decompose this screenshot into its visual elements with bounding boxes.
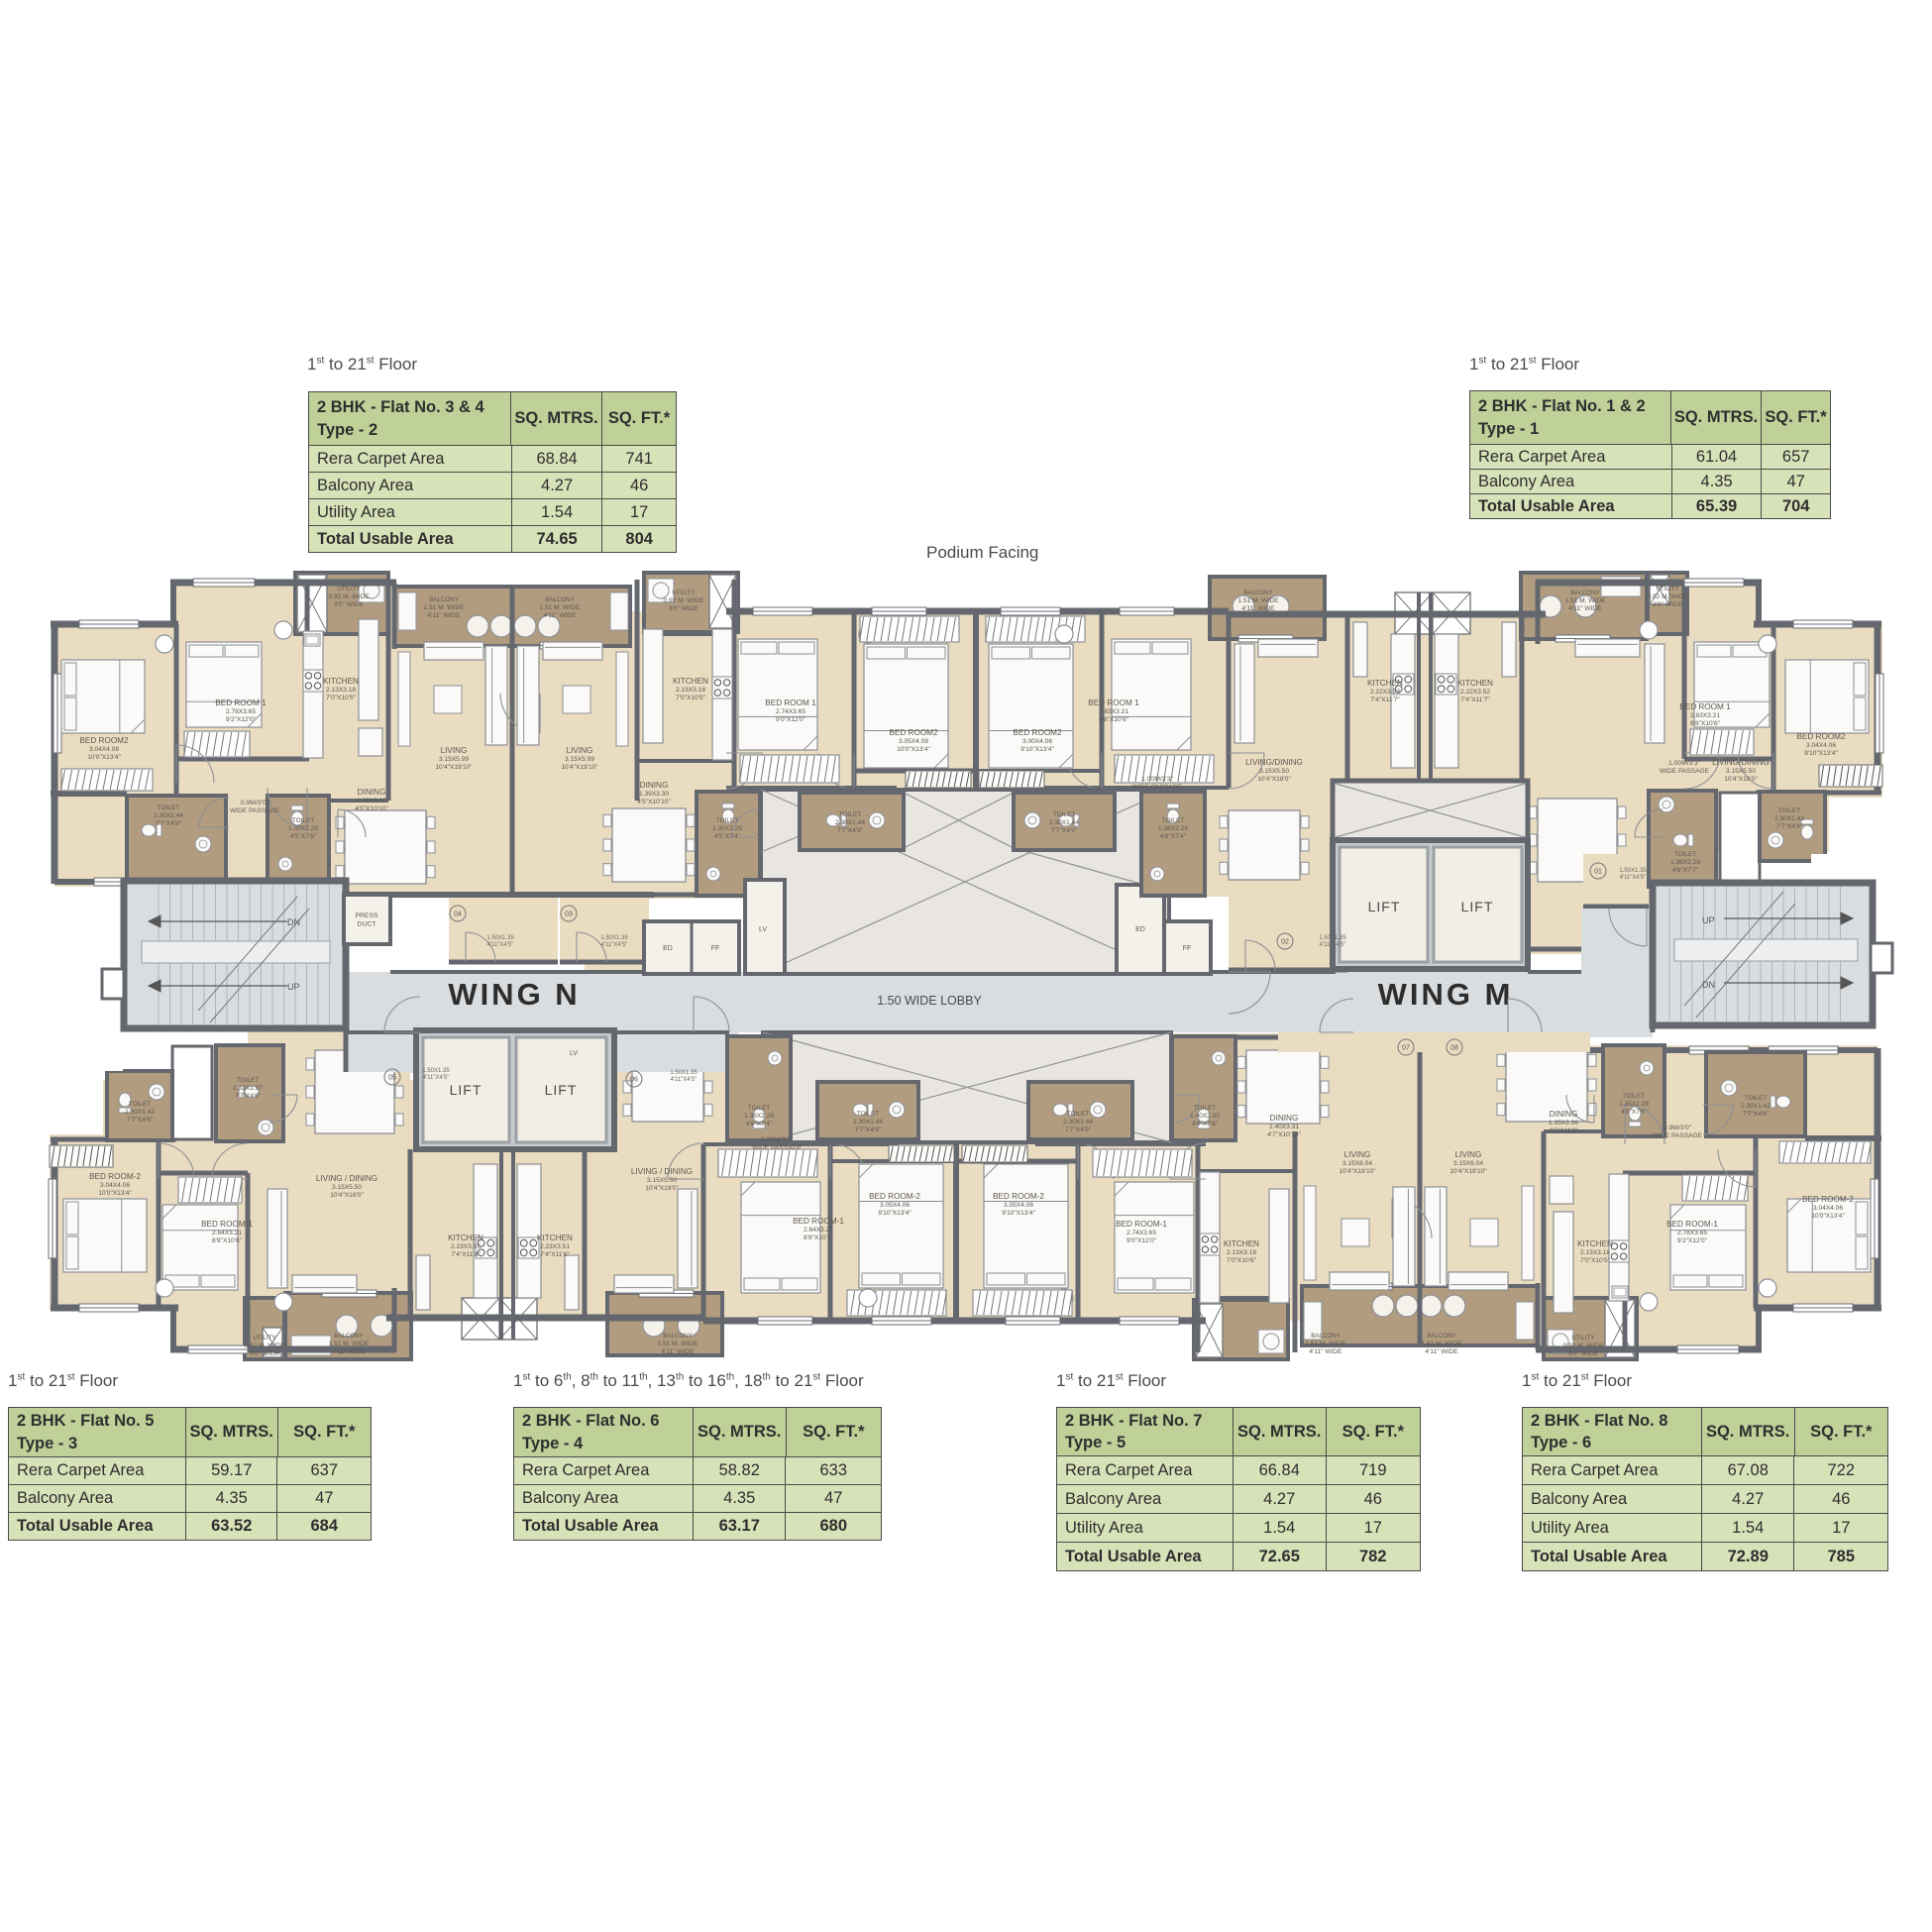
svg-text:WING N: WING N <box>448 977 580 1012</box>
svg-text:LIFT: LIFT <box>450 1082 483 1098</box>
svg-text:KITCHEN2.23X3.557'4"X11'8": KITCHEN2.23X3.557'4"X11'8" <box>448 1234 483 1258</box>
svg-text:07: 07 <box>1402 1045 1410 1052</box>
svg-text:4'11"X4'5": 4'11"X4'5" <box>423 1075 450 1081</box>
svg-text:1.50X1.35: 1.50X1.35 <box>600 935 628 941</box>
svg-text:ED: ED <box>1135 926 1145 933</box>
svg-text:TOILET2.30X1.447'7"X4'9": TOILET2.30X1.447'7"X4'9" <box>853 1111 883 1133</box>
svg-text:LIFT: LIFT <box>545 1082 578 1098</box>
svg-text:1.50X1.35: 1.50X1.35 <box>1319 935 1346 941</box>
svg-text:TOILET2.30X1.447'7"X4'9": TOILET2.30X1.447'7"X4'9" <box>1049 811 1079 834</box>
svg-text:TOILET1.38X2.284'6"X7'7": TOILET1.38X2.284'6"X7'7" <box>1670 851 1700 874</box>
svg-text:LV: LV <box>759 926 767 933</box>
svg-text:UP: UP <box>1702 915 1715 925</box>
svg-text:4'11"X4'5": 4'11"X4'5" <box>1620 875 1647 881</box>
svg-text:03: 03 <box>565 912 573 918</box>
svg-text:ED: ED <box>663 945 673 952</box>
svg-text:KITCHEN2.22X3.527'4"X11'7": KITCHEN2.22X3.527'4"X11'7" <box>1367 679 1403 703</box>
svg-text:TOILET1.35X2.254'5"X7'4": TOILET1.35X2.254'5"X7'4" <box>712 817 742 840</box>
svg-text:4'11"X4'5": 4'11"X4'5" <box>1320 942 1346 948</box>
svg-text:TOILET2.32X1.377'7"X4'6": TOILET2.32X1.377'7"X4'6" <box>233 1077 263 1100</box>
svg-text:DINING1.35X3.364'5"X11'0": DINING1.35X3.364'5"X11'0" <box>1549 1110 1578 1134</box>
svg-text:TOILET1.35X2.284'5"X7'6": TOILET1.35X2.284'5"X7'6" <box>1619 1093 1649 1116</box>
svg-text:4'11"X4'5": 4'11"X4'5" <box>671 1077 698 1083</box>
svg-text:DINING1.39X3.304'5"X10'10": DINING1.39X3.304'5"X10'10" <box>355 788 388 812</box>
svg-text:1.50X1.35: 1.50X1.35 <box>422 1068 450 1074</box>
svg-text:LV: LV <box>570 1050 578 1057</box>
svg-text:KITCHEN2.13X3.187'0"X10'5": KITCHEN2.13X3.187'0"X10'5" <box>673 677 708 701</box>
svg-text:DN: DN <box>1702 980 1715 990</box>
svg-text:KITCHEN2.22X3.527'4"X11'7": KITCHEN2.22X3.527'4"X11'7" <box>1457 679 1493 703</box>
svg-text:KITCHEN2.13X3.187'0"X10'5": KITCHEN2.13X3.187'0"X10'5" <box>323 677 359 701</box>
svg-text:PRESSDUCT: PRESSDUCT <box>355 912 378 927</box>
svg-text:08: 08 <box>1450 1045 1458 1052</box>
svg-text:06: 06 <box>630 1077 638 1084</box>
svg-text:4'11"X4'5": 4'11"X4'5" <box>601 942 628 948</box>
svg-text:1.50X1.35: 1.50X1.35 <box>486 935 514 941</box>
svg-text:05: 05 <box>388 1075 396 1082</box>
svg-text:KITCHEN2.13X3.187'0"X10'6": KITCHEN2.13X3.187'0"X10'6" <box>1224 1239 1259 1264</box>
svg-text:4'11"X4'5": 4'11"X4'5" <box>487 942 514 948</box>
svg-text:WING M: WING M <box>1378 977 1514 1012</box>
svg-text:TOILET2.30X1.427'7"X4'8": TOILET2.30X1.427'7"X4'8" <box>1741 1095 1771 1118</box>
svg-text:TOILET1.38X2.254'6"X7'4": TOILET1.38X2.254'6"X7'4" <box>1158 817 1188 840</box>
svg-text:DINING1.39X3.304'5"X10'10": DINING1.39X3.304'5"X10'10" <box>637 781 671 805</box>
svg-text:FF: FF <box>711 945 720 952</box>
svg-text:TOILET2.30X1.447'7"X4'9": TOILET2.30X1.447'7"X4'9" <box>835 811 865 834</box>
svg-text:1.50 WIDE LOBBY: 1.50 WIDE LOBBY <box>877 994 982 1008</box>
svg-text:DINING1.40X3.314'7"X10'10": DINING1.40X3.314'7"X10'10" <box>1267 1114 1301 1138</box>
svg-text:LIFT: LIFT <box>1368 899 1401 914</box>
svg-text:LIFT: LIFT <box>1461 899 1494 914</box>
svg-text:01: 01 <box>1594 869 1602 876</box>
svg-text:TOILET2.30X1.447'7"X4'9": TOILET2.30X1.447'7"X4'9" <box>154 805 183 827</box>
svg-text:FF: FF <box>1183 945 1192 952</box>
svg-text:KITCHEN2.13X3.187'0"X10'5": KITCHEN2.13X3.187'0"X10'5" <box>1577 1239 1613 1264</box>
svg-text:TOILET1.40X2.304'6"X7'6": TOILET1.40X2.304'6"X7'6" <box>1190 1105 1220 1127</box>
svg-text:UP: UP <box>287 982 300 992</box>
svg-text:04: 04 <box>454 912 462 918</box>
svg-text:TOILET2.30X1.427'7"X4'8": TOILET2.30X1.427'7"X4'8" <box>1774 807 1804 830</box>
svg-text:1.50X1.35: 1.50X1.35 <box>670 1070 698 1076</box>
svg-text:TOILET2.30X1.447'7"X4'9": TOILET2.30X1.447'7"X4'9" <box>1063 1111 1093 1133</box>
svg-text:TOILET2.30X1.427'7"X4'6": TOILET2.30X1.427'7"X4'6" <box>125 1101 155 1124</box>
svg-text:KITCHEN2.23X3.517'4"X11'6": KITCHEN2.23X3.517'4"X11'6" <box>537 1234 573 1258</box>
svg-text:DN: DN <box>287 917 300 927</box>
svg-text:1.50X1.35: 1.50X1.35 <box>1619 868 1647 874</box>
svg-text:02: 02 <box>1281 939 1289 946</box>
svg-text:TOILET1.35X2.284'5"X7'6": TOILET1.35X2.284'5"X7'6" <box>288 817 318 840</box>
svg-text:TOILET1.38X2.284'6"X7'4": TOILET1.38X2.284'6"X7'4" <box>744 1105 774 1127</box>
